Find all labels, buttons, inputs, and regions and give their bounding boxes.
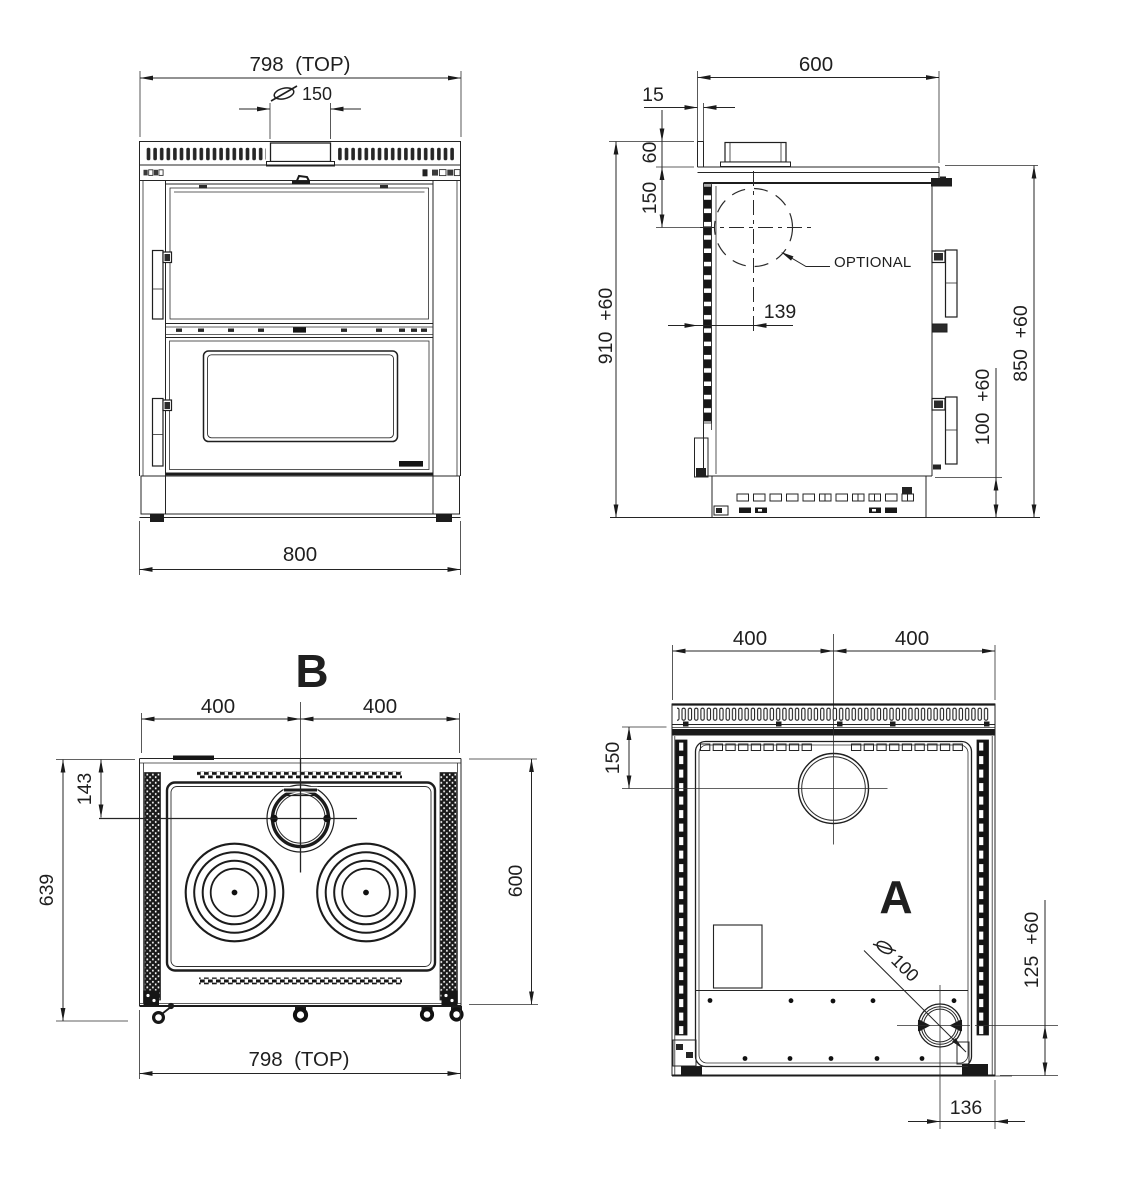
svg-text:143: 143	[74, 773, 96, 806]
svg-text:400: 400	[363, 695, 397, 718]
svg-text:B: B	[295, 645, 328, 697]
svg-text:60: 60	[639, 142, 661, 164]
svg-text:800: 800	[283, 543, 317, 566]
svg-text:A: A	[879, 871, 912, 923]
svg-text:139: 139	[764, 301, 797, 323]
svg-text:400: 400	[895, 627, 929, 650]
svg-text:910 +60: 910 +60	[595, 288, 617, 365]
svg-text:850 +60: 850 +60	[1010, 305, 1032, 382]
svg-text:600: 600	[505, 865, 527, 898]
svg-text:150: 150	[639, 182, 661, 215]
svg-text:150: 150	[602, 742, 624, 775]
svg-text:15: 15	[642, 84, 664, 106]
svg-text:400: 400	[201, 695, 235, 718]
svg-text:136: 136	[950, 1097, 983, 1119]
svg-text:100 +60: 100 +60	[972, 369, 994, 446]
svg-text:OPTIONAL: OPTIONAL	[834, 254, 911, 271]
svg-text:798 (TOP): 798 (TOP)	[248, 1048, 349, 1071]
svg-text:125 +60: 125 +60	[1021, 912, 1043, 989]
svg-text:400: 400	[733, 627, 767, 650]
svg-text:639: 639	[36, 874, 58, 907]
svg-text:150: 150	[302, 84, 332, 104]
svg-text:798 (TOP): 798 (TOP)	[249, 53, 350, 76]
svg-text:600: 600	[799, 53, 833, 76]
